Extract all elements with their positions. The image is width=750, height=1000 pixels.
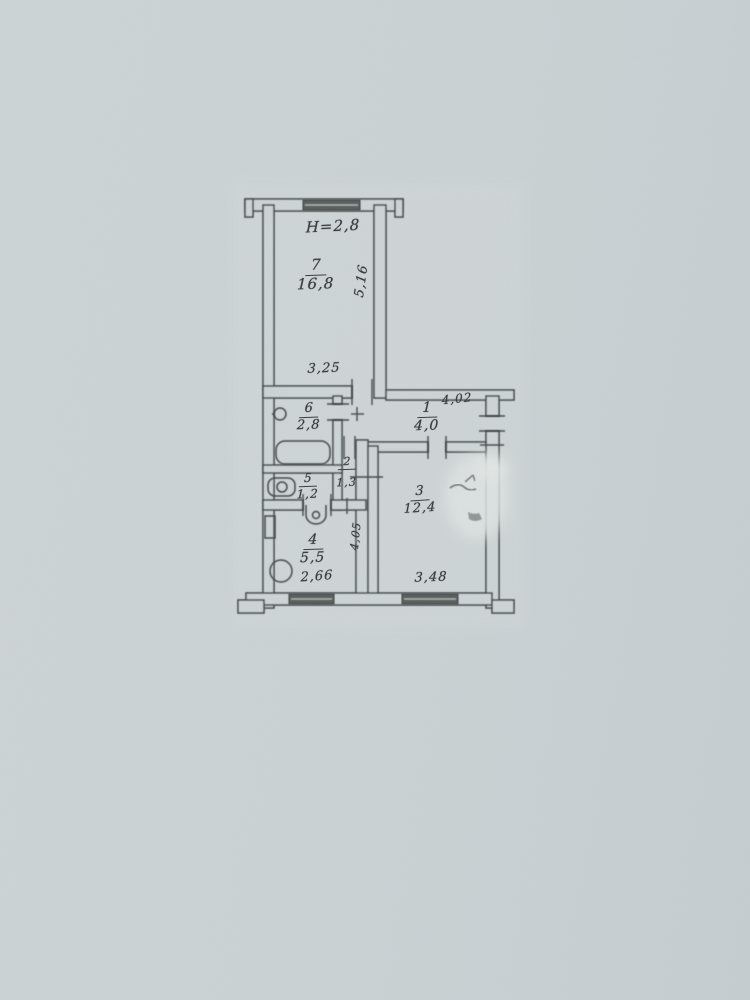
scanned-floor-plan: H=2,8 7 16,8 5,16 3,25 1 4,0 4,02 6 2,8 … <box>0 0 750 1000</box>
floor-plan-drawing <box>0 0 750 1000</box>
paper-grain <box>0 0 750 1000</box>
